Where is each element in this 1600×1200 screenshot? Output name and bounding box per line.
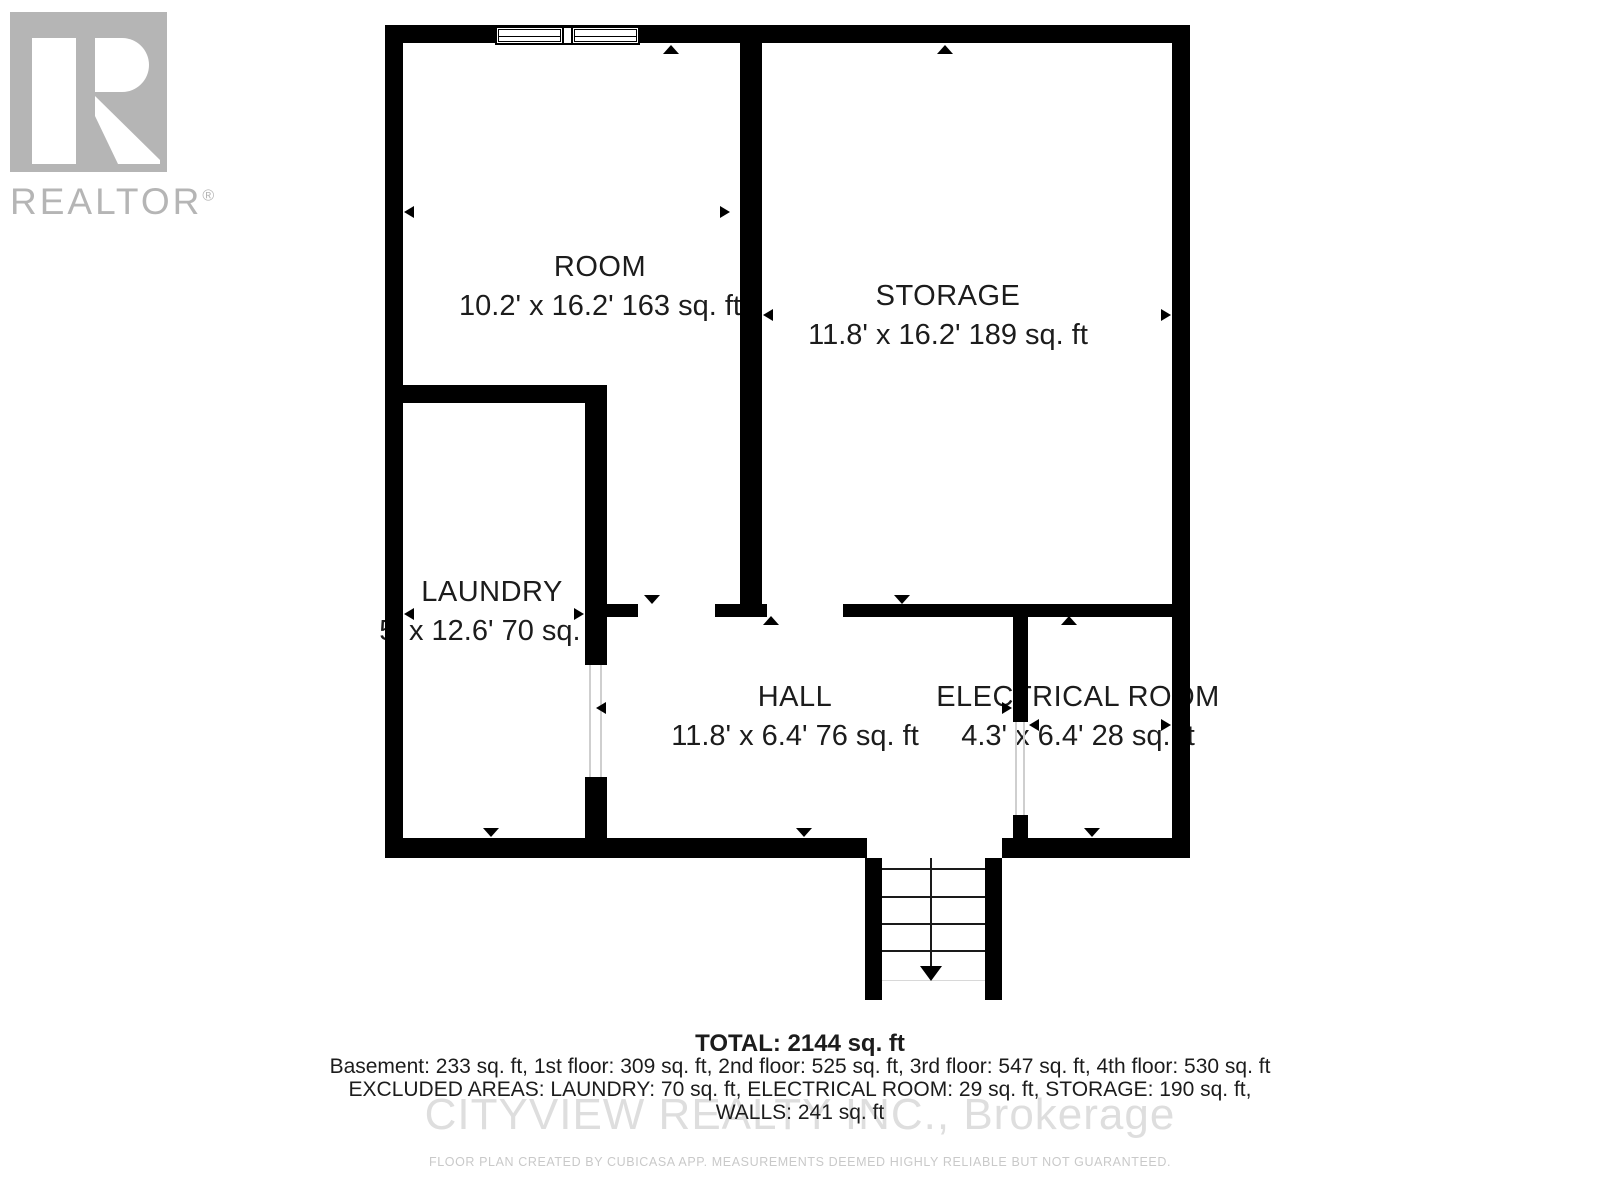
wall-outer-bottom-left <box>385 838 867 858</box>
measure-arrow-up-icon <box>763 616 779 625</box>
room-label-storage: STORAGE 11.8' x 16.2' 189 sq. ft <box>808 279 1088 353</box>
measure-arrow-left-icon <box>404 608 414 620</box>
measure-arrow-up-icon <box>474 393 490 402</box>
wall-outer-bottom-right <box>1002 838 1190 858</box>
electrical-door-jamb <box>1015 722 1017 815</box>
wall-storage-bottom <box>843 604 1172 617</box>
measure-arrow-down-icon <box>483 828 499 837</box>
stairs-down-arrow-icon <box>920 966 942 981</box>
stair-direction-line <box>930 858 932 968</box>
measure-arrow-right-icon <box>720 206 730 218</box>
disclaimer-text: FLOOR PLAN CREATED BY CUBICASA APP. MEAS… <box>0 1155 1600 1169</box>
measure-arrow-right-icon <box>1161 719 1171 731</box>
room-name: LAUNDRY <box>379 575 605 610</box>
stair-tread <box>882 923 985 925</box>
measure-arrow-left-icon <box>404 206 414 218</box>
window-pane-left <box>498 29 561 42</box>
measure-arrow-right-icon <box>574 608 584 620</box>
stair-tread <box>882 896 985 898</box>
wall-laundry-right-lower <box>585 777 607 838</box>
measure-arrow-down-icon <box>796 828 812 837</box>
measure-arrow-down-icon <box>894 595 910 604</box>
floor-plan-page: REALTOR® <box>0 0 1600 1200</box>
measure-arrow-right-icon <box>1161 309 1171 321</box>
measure-arrow-left-icon <box>596 702 606 714</box>
total-area-line: TOTAL: 2144 sq. ft <box>0 1030 1600 1058</box>
wall-outer-left <box>385 25 403 858</box>
wall-outer-right <box>1172 25 1190 858</box>
room-name: STORAGE <box>808 279 1088 314</box>
wall-laundry-top <box>385 385 607 403</box>
measure-arrow-down-icon <box>644 595 660 604</box>
measure-arrow-up-icon <box>937 45 953 54</box>
laundry-door-jamb <box>589 665 591 777</box>
stair-tread <box>882 868 985 870</box>
wall-divider-base <box>715 604 767 617</box>
window-pane-right <box>574 29 637 42</box>
floor-areas-line: Basement: 233 sq. ft, 1st floor: 309 sq.… <box>0 1055 1600 1079</box>
measure-arrow-up-icon <box>663 45 679 54</box>
wall-stairwell-left <box>865 858 882 1000</box>
measure-arrow-up-icon <box>1061 616 1077 625</box>
wall-electrical-left-lower <box>1013 815 1028 838</box>
wall-room-storage-divider <box>740 43 762 617</box>
walls-area-line: WALLS: 241 sq. ft <box>0 1101 1600 1125</box>
window-mullion <box>562 28 573 43</box>
window-icon <box>495 26 640 45</box>
room-name: HALL <box>671 680 919 715</box>
realtor-wordmark: REALTOR® <box>10 181 217 223</box>
realtor-block-r-icon <box>10 12 167 172</box>
room-dimensions: 11.8' x 6.4' 76 sq. ft <box>671 719 919 754</box>
realtor-logo: REALTOR® <box>10 12 217 223</box>
registered-symbol: ® <box>202 188 217 205</box>
room-dimensions: 10.2' x 16.2' 163 sq. ft <box>459 289 741 324</box>
measure-arrow-left-icon <box>1029 719 1039 731</box>
stair-tread <box>882 950 985 952</box>
room-dimensions: 11.8' x 16.2' 189 sq. ft <box>808 318 1088 353</box>
measure-arrow-left-icon <box>763 309 773 321</box>
wall-laundry-right-upper <box>585 403 607 665</box>
room-name: ROOM <box>459 250 741 285</box>
wall-stairwell-right <box>985 858 1002 1000</box>
wall-hall-top-stub <box>598 604 638 617</box>
staircase <box>882 858 985 1000</box>
wall-electrical-left-upper <box>1013 604 1028 722</box>
measure-arrow-right-icon <box>1002 702 1012 714</box>
electrical-door-jamb <box>1023 722 1025 815</box>
laundry-door-jamb <box>600 665 602 777</box>
excluded-areas-line: EXCLUDED AREAS: LAUNDRY: 70 sq. ft, ELEC… <box>0 1078 1600 1102</box>
room-label-hall: HALL 11.8' x 6.4' 76 sq. ft <box>671 680 919 754</box>
room-label-room: ROOM 10.2' x 16.2' 163 sq. ft <box>459 250 741 324</box>
measure-arrow-down-icon <box>1084 828 1100 837</box>
